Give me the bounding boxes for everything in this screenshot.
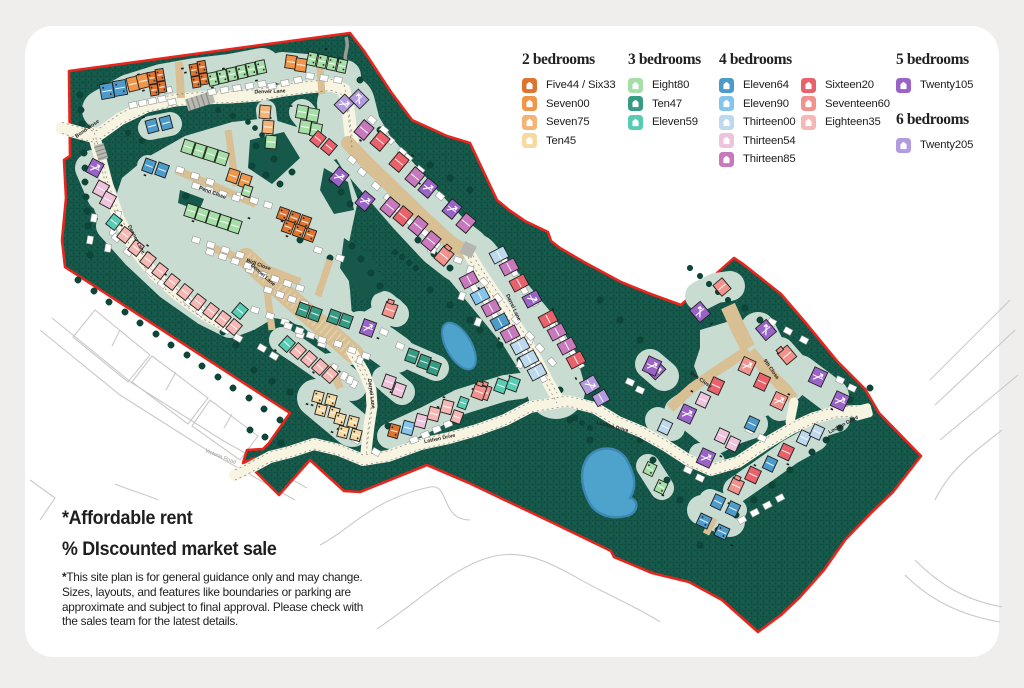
svg-text:Victoria Road: Victoria Road xyxy=(204,448,237,466)
svg-text:Denver Lane: Denver Lane xyxy=(254,88,285,95)
